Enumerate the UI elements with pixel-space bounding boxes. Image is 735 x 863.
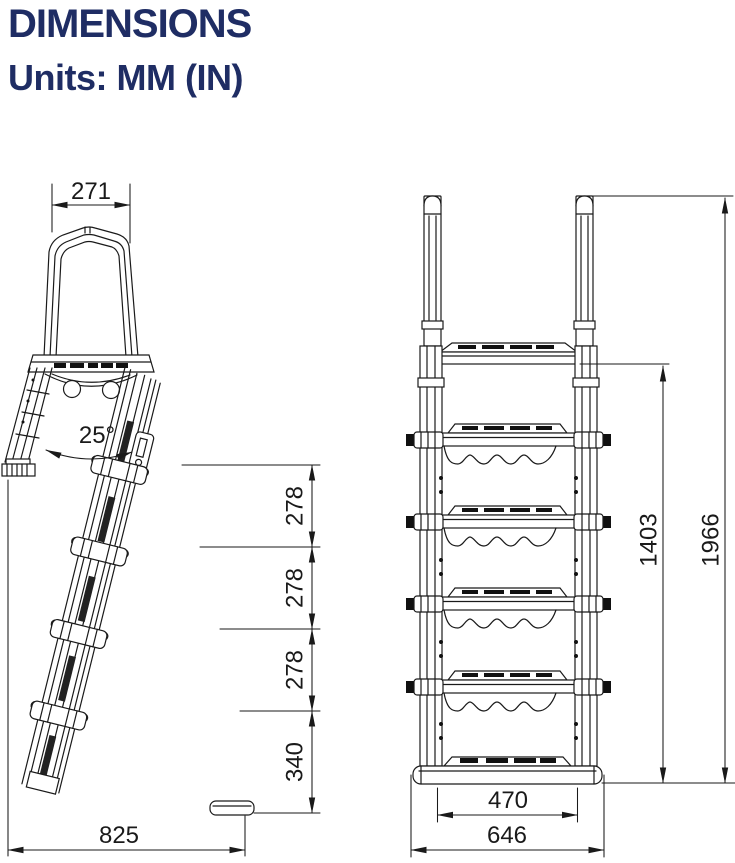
label-bottom-gap: 340 — [281, 742, 308, 782]
label-handle-width: 271 — [71, 178, 111, 205]
side-ladder-foot — [210, 801, 254, 815]
front-posts — [422, 196, 595, 346]
dimension-labels: 271 25° 278 278 278 340 825 470 646 1403… — [71, 178, 724, 849]
label-leg-angle: 25° — [79, 422, 115, 449]
front-stiles — [418, 346, 599, 766]
label-step-gap-3: 278 — [281, 650, 308, 690]
side-knob-left — [64, 381, 81, 398]
front-view — [406, 196, 611, 784]
label-base-width: 646 — [487, 822, 527, 849]
dimensions-diagram: DIMENSIONS Units: MM (IN) — [0, 0, 735, 863]
dim-footprint — [8, 480, 245, 856]
technical-drawing: 271 25° 278 278 278 340 825 470 646 1403… — [0, 0, 735, 863]
label-deck-height: 1403 — [635, 513, 662, 566]
side-handle-arch — [44, 227, 138, 357]
label-step-gap-1: 278 — [281, 486, 308, 526]
label-tread-width: 470 — [488, 787, 528, 814]
dimension-annotations — [8, 184, 735, 857]
label-overall-height: 1966 — [697, 513, 724, 566]
front-platform — [437, 343, 580, 364]
side-view — [2, 227, 254, 815]
side-front-foot — [2, 459, 35, 476]
side-knob-right — [103, 382, 120, 399]
label-step-gap-2: 278 — [281, 568, 308, 608]
side-body — [28, 355, 154, 399]
side-front-leg — [5, 368, 52, 462]
label-footprint: 825 — [99, 822, 139, 849]
